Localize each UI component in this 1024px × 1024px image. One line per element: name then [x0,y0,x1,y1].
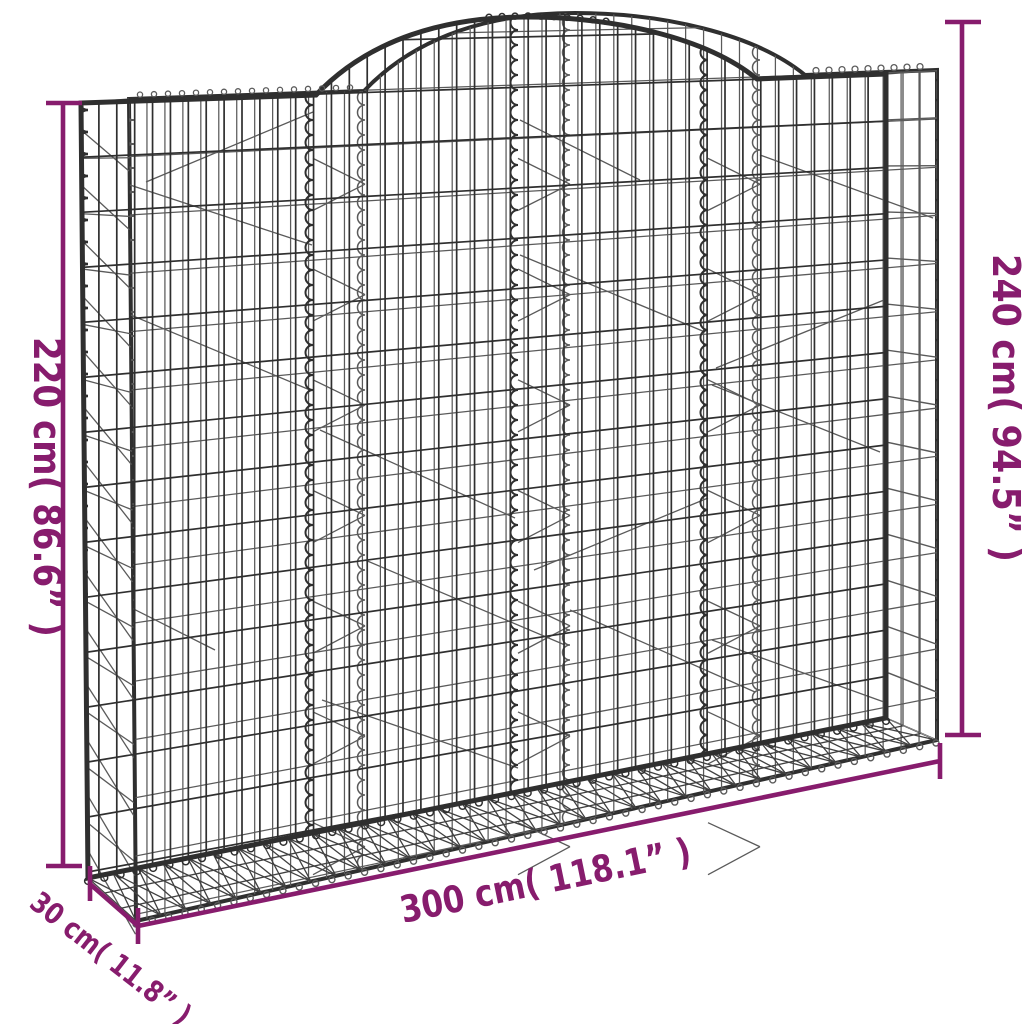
gabion-basket-drawing [56,0,962,960]
dimension-label-depth: 30 cm( 11.8” ) [24,885,199,1024]
gabion-dimension-diagram: 220 cm( 86.6” ) 240 cm( 94.5” ) 300 cm( … [0,0,1024,1024]
dimension-height-right: 240 cm( 94.5” ) [945,22,1024,735]
gabion-diagram-svg: 220 cm( 86.6” ) 240 cm( 94.5” ) 300 cm( … [0,0,1024,1024]
dimension-height-left: 220 cm( 86.6” ) [25,103,82,866]
dimension-label-height-left: 220 cm( 86.6” ) [25,337,69,637]
dimension-label-width: 300 cm( 118.1” ) [396,830,695,932]
dimension-label-height-right: 240 cm( 94.5” ) [984,254,1024,562]
dimension-line-height-right [945,22,981,735]
